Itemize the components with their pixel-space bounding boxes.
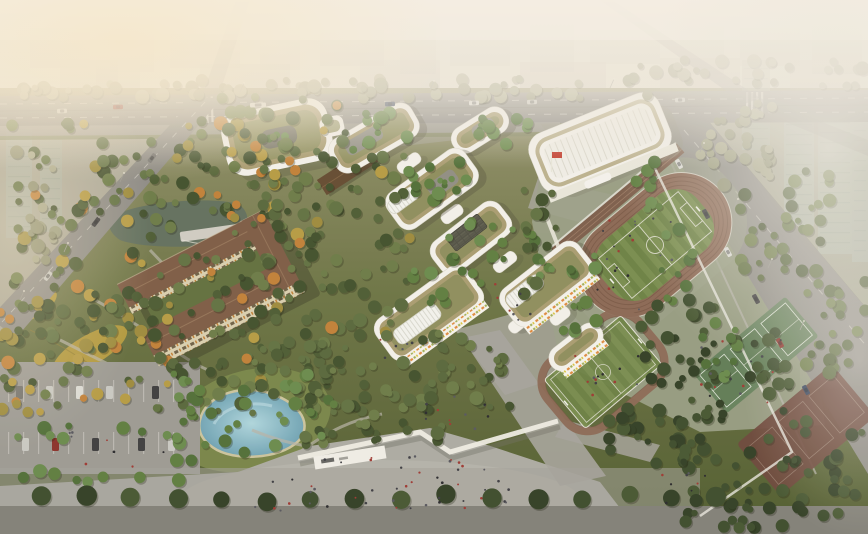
fog-overlay [0, 0, 868, 534]
scene-canvas [0, 0, 868, 534]
architectural-rendering [0, 0, 868, 534]
